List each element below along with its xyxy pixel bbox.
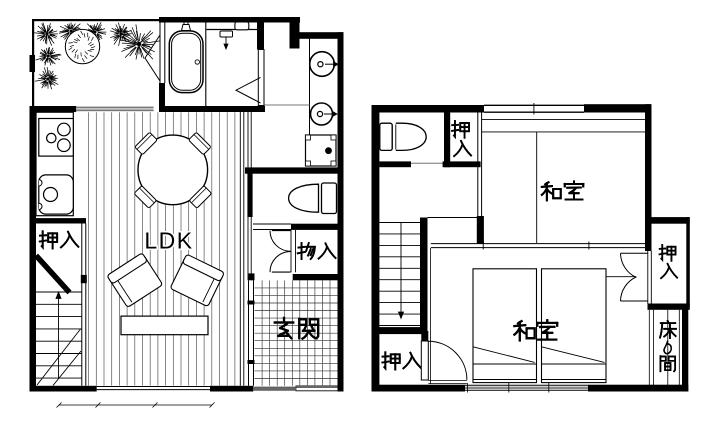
svg-text:LDK: LDK (144, 228, 193, 254)
